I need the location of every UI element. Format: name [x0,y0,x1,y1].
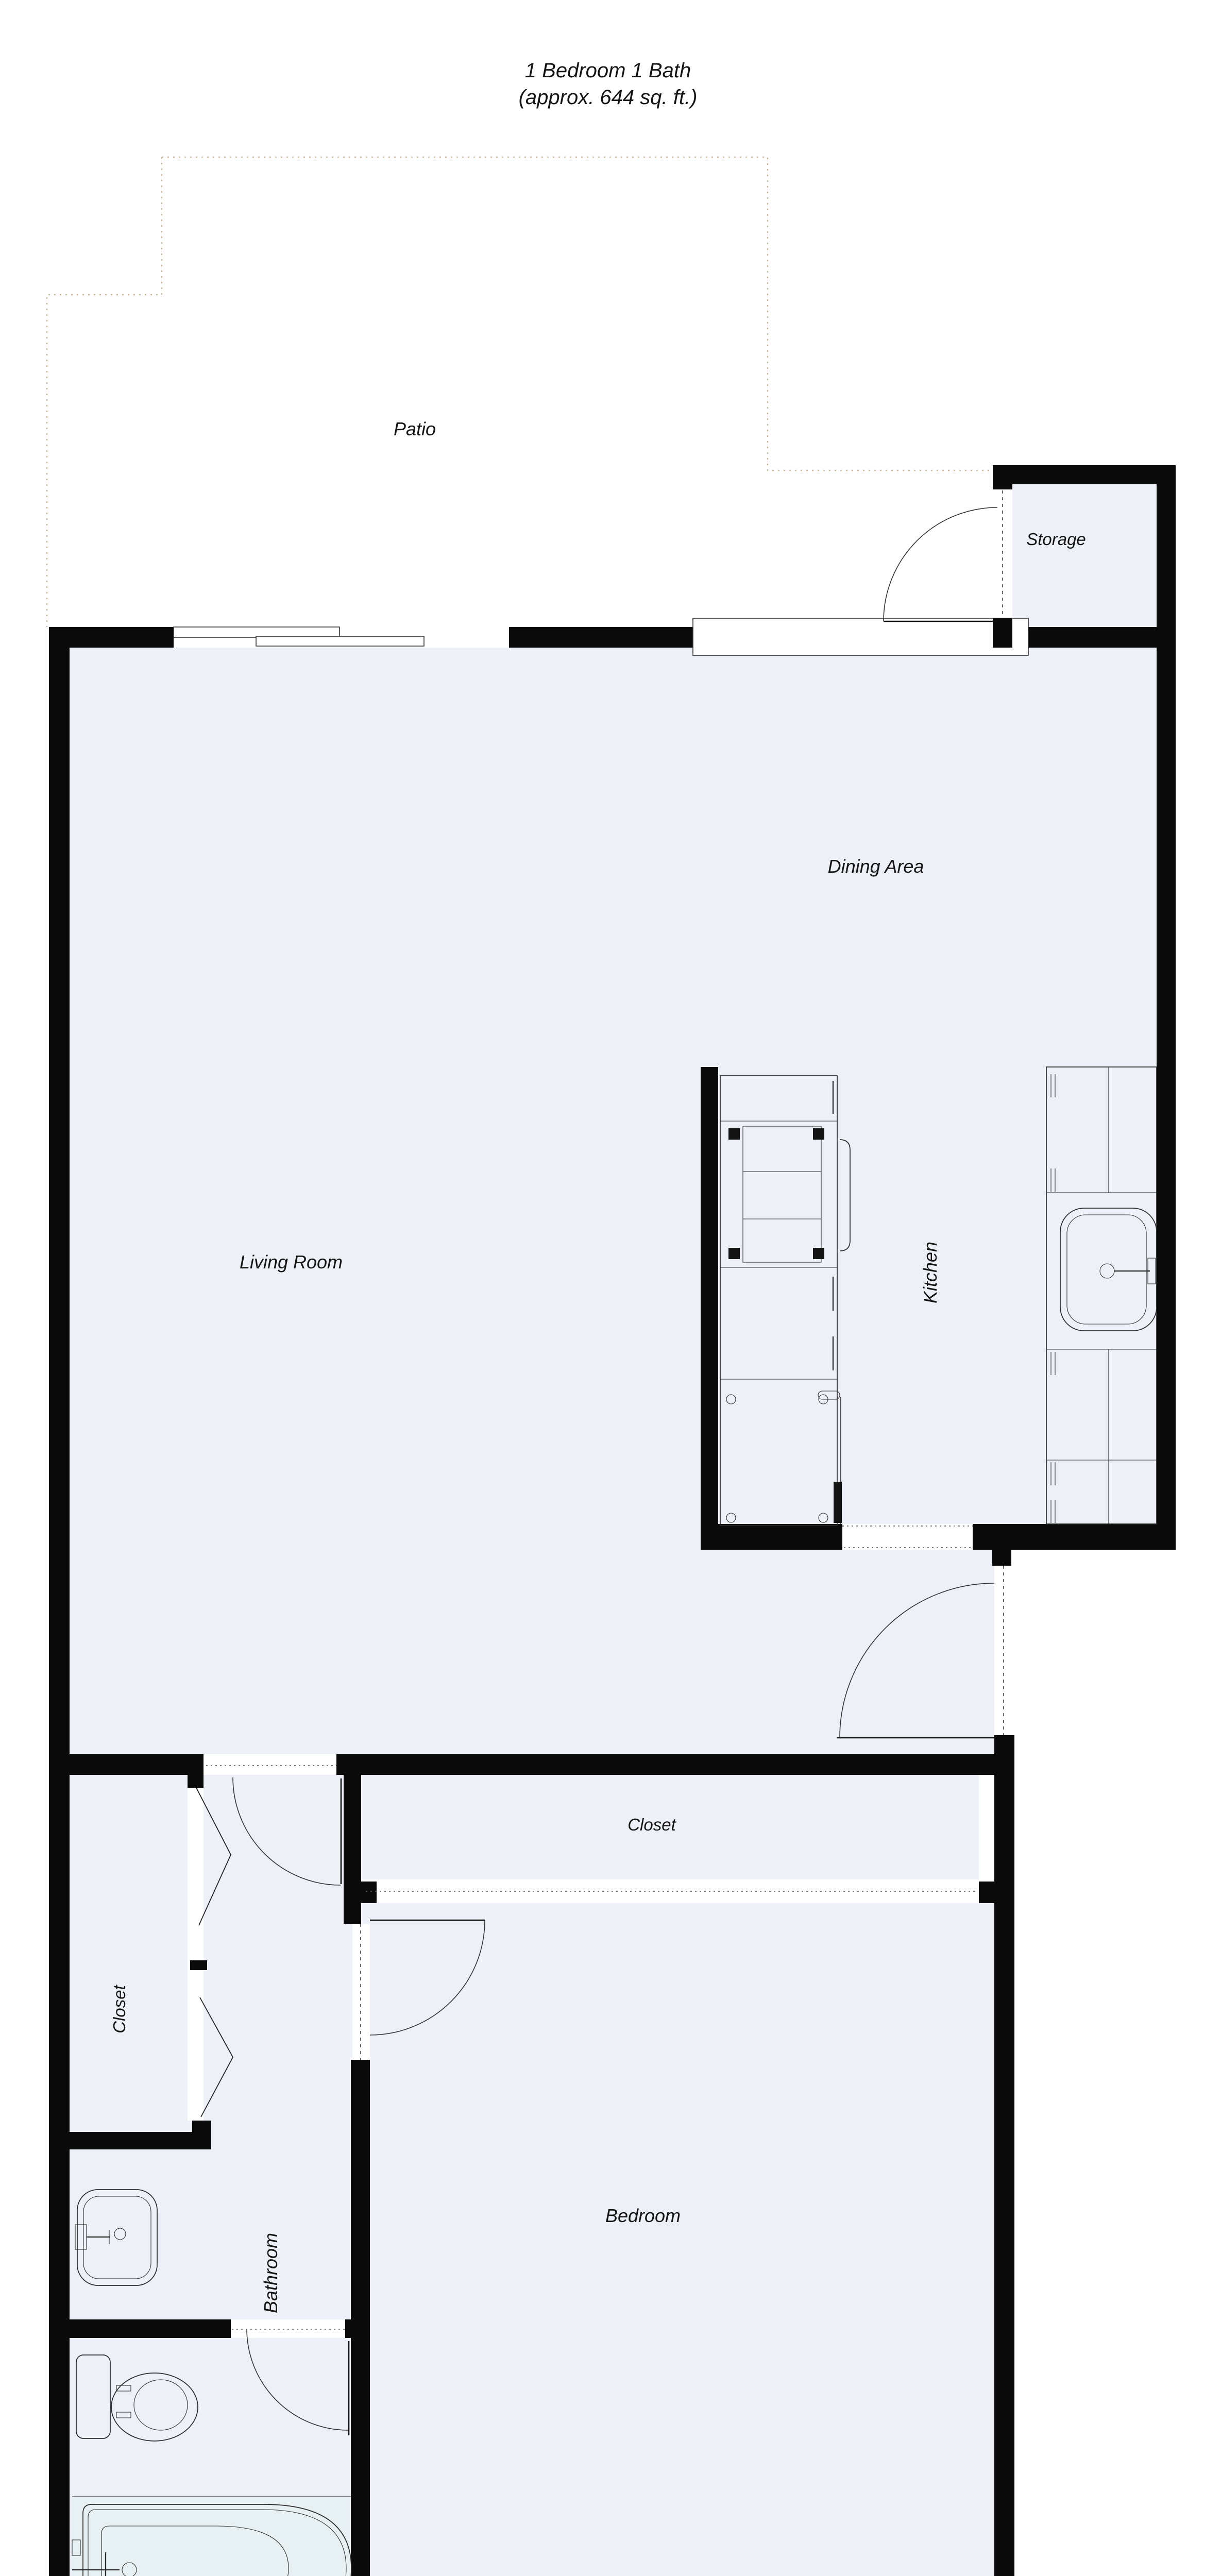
burner [813,1248,824,1259]
room-label-patio: Patio [394,418,436,439]
kitchen-south-wall-right [973,1524,1176,1550]
kitchen-cased-opening [842,1524,973,1550]
bifold-mid-post [190,1960,207,1970]
toilet-room-wall-block [345,2319,370,2338]
door-swing-icon [884,507,997,621]
north-wall-mid [509,627,714,648]
east-exterior-wall-upper [1157,465,1176,1550]
entry-stoop [693,618,1028,655]
patio-door-post [993,618,1012,648]
sink-alcove-wall [70,2132,211,2149]
burner [728,1248,740,1259]
patio-outline-right [162,157,992,470]
entry-door-opening [995,1566,1014,1735]
room-label-storage: Storage [1026,530,1086,549]
toilet-room-door-opening [231,2319,345,2338]
west-exterior-wall [49,627,70,2576]
patio-boundary [47,157,992,627]
bifold-opening-band [188,1788,203,2121]
storage-floor [1012,484,1157,627]
burner [813,1128,824,1140]
room-label-closet-hall: Closet [110,1984,129,2033]
bathroom-east-wall [351,2060,370,2576]
page-title-line2: (approx. 644 sq. ft.) [519,86,698,109]
page-title-line1: 1 Bedroom 1 Bath [525,59,691,82]
patio-outline-left [47,157,162,627]
patio-entry-door [884,507,997,621]
north-wall-right [1028,627,1176,648]
bathroom-door-opening [203,1754,336,1775]
room-label-bedroom: Bedroom [605,2205,681,2226]
floor-plan-drawing: 1 Bedroom 1 Bath (approx. 644 sq. ft.) P… [0,0,1221,2576]
north-wall-left [49,627,174,648]
room-label-bathroom: Bathroom [260,2233,281,2313]
tub-alcove-floor [72,2497,351,2576]
east-exterior-wall-lower [994,1735,1014,2576]
living-floor-lower [70,1524,994,1754]
room-label-living: Living Room [240,1251,343,1273]
kitchen-west-wall [701,1067,718,1524]
closet-opening-post-left [344,1882,377,1903]
living-dining-kitchen-floor [70,647,1157,1524]
fridge-hinge [834,1482,842,1523]
room-label-closet-bedroom: Closet [628,1815,676,1834]
kitchen-south-wall-left [701,1524,842,1550]
closet-bottom-block [192,2121,211,2133]
bathroom-hall-floor [70,1775,352,2576]
closet-north-wall [336,1754,994,1775]
bedroom-floor [352,1896,994,2576]
room-label-dining: Dining Area [828,856,924,877]
storage-west-stub [993,465,1012,489]
bifold-top-block [188,1775,203,1788]
bedroom-door-opening [352,1924,370,2060]
floor-plan-page: 1 Bedroom 1 Bath (approx. 644 sq. ft.) P… [0,0,1221,2576]
bedroom-closet-floor [361,1775,979,1896]
living-south-wall-left [70,1754,203,1775]
entry-door-stub [992,1550,1011,1566]
window-icon [256,636,424,646]
toilet-room-wall-left [70,2319,231,2338]
storage-north-wall [993,465,1176,484]
room-label-kitchen: Kitchen [920,1242,941,1303]
window-icon [174,627,340,637]
closet-opening-post-right [979,1882,1014,1903]
burner [728,1128,740,1140]
